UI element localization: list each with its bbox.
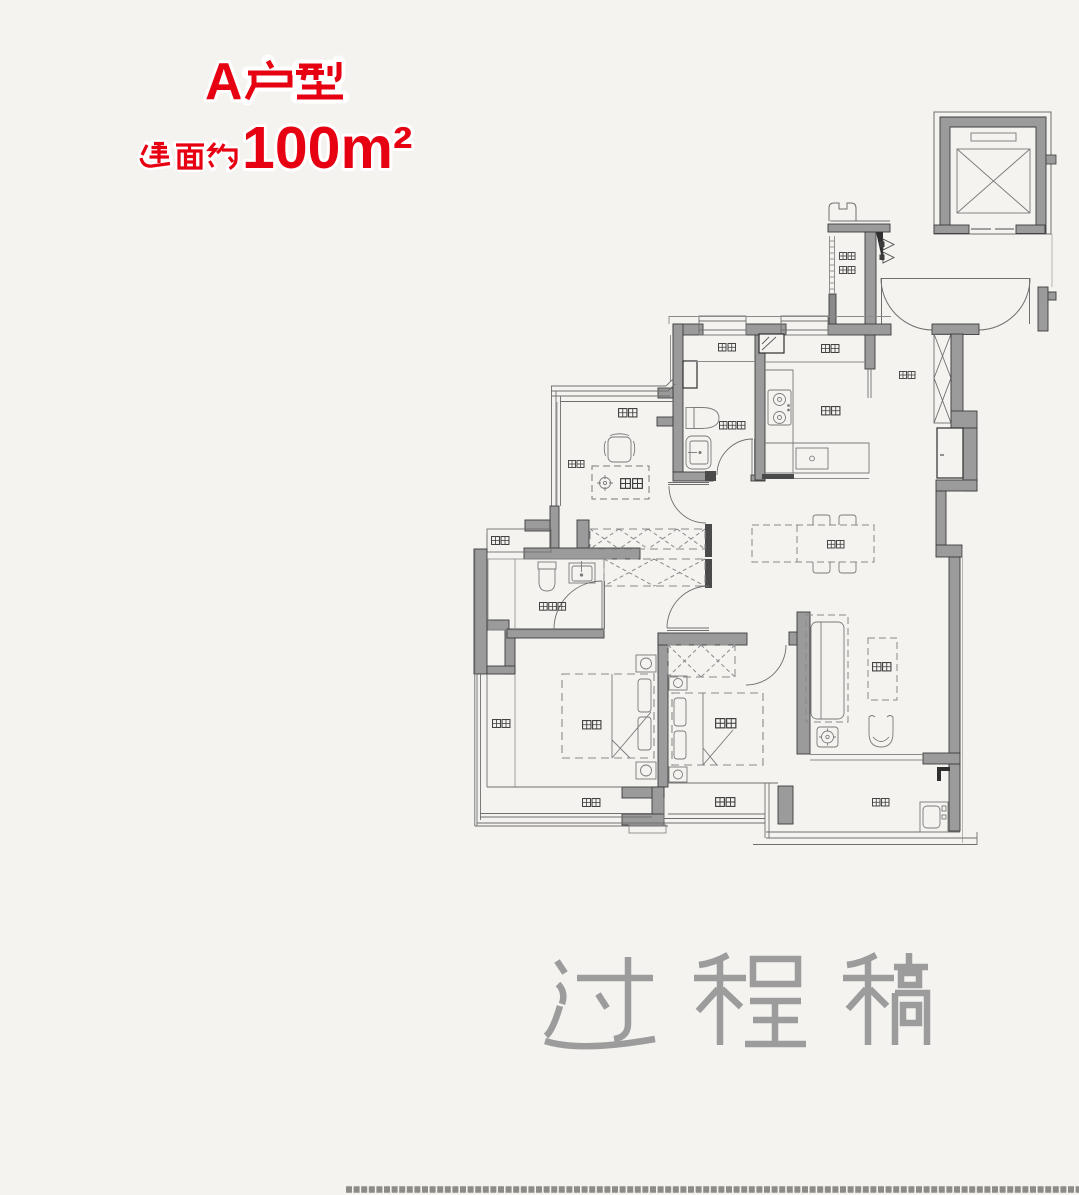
svg-text:100m²: 100m² [242,115,413,181]
svg-text:A: A [205,53,243,111]
